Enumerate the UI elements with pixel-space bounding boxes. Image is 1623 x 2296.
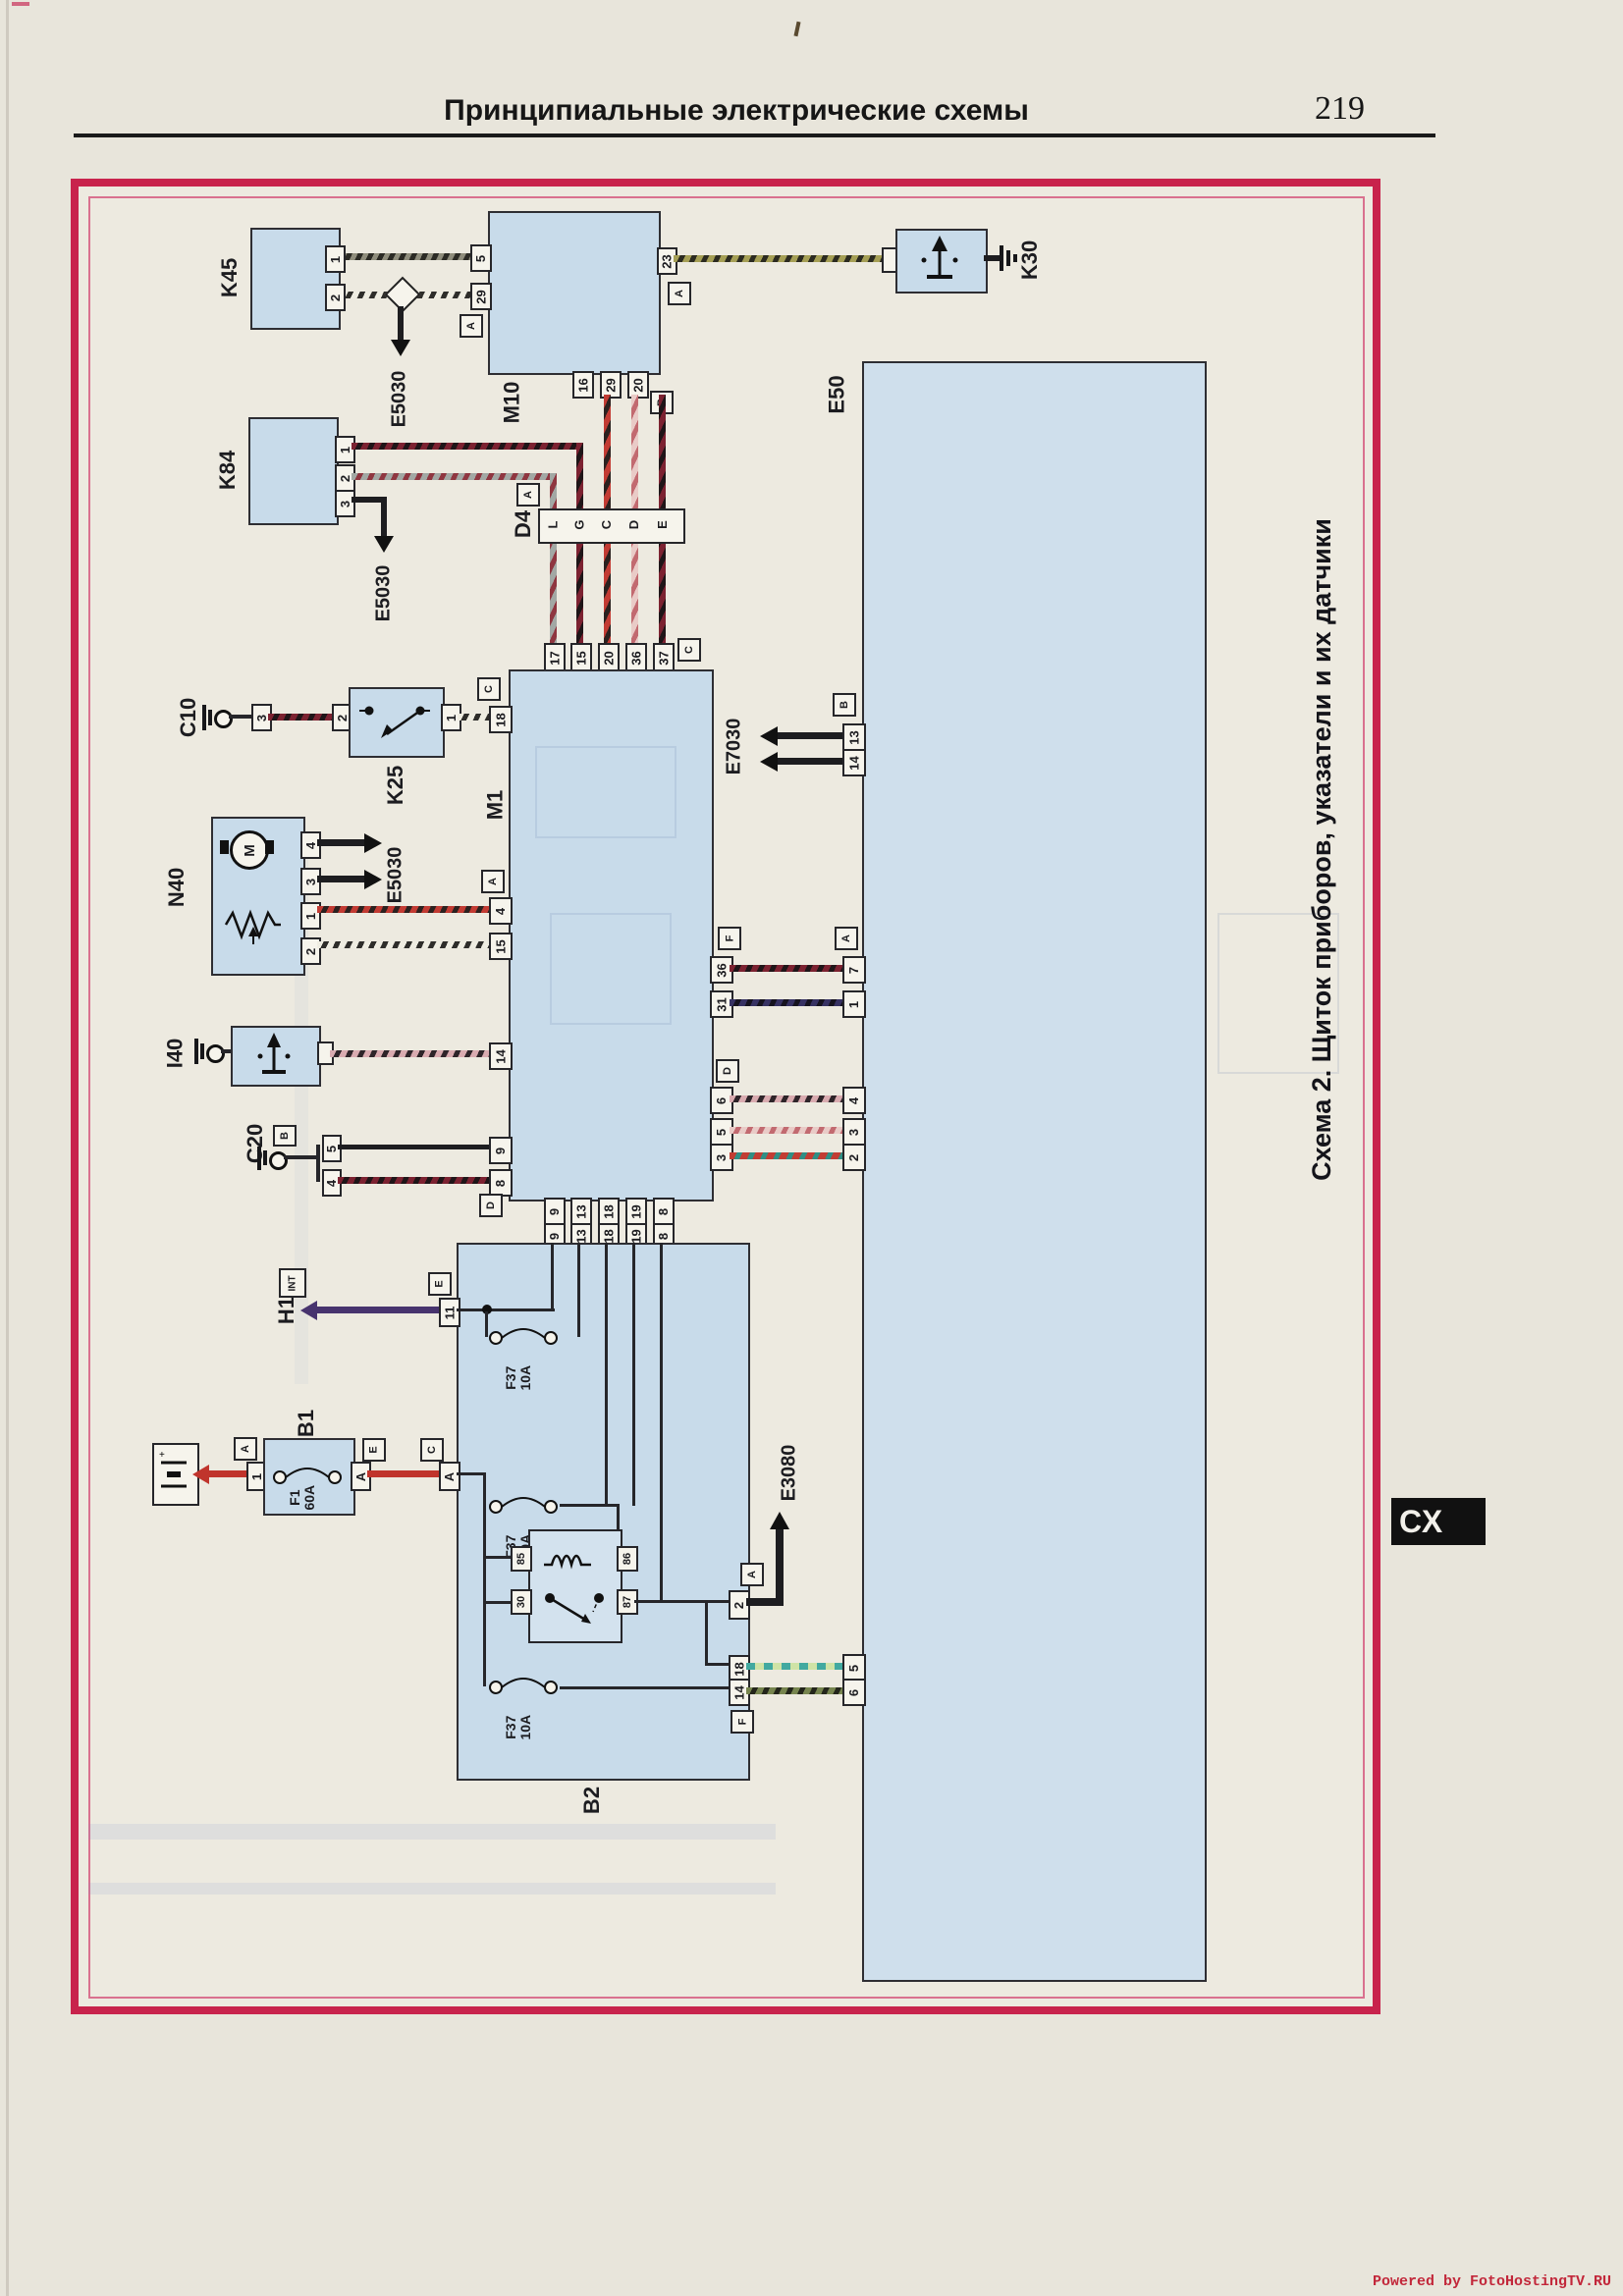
- pin-d4-L: L: [544, 512, 562, 536]
- scan-edge: [6, 0, 9, 2296]
- label-ground-e3080: E3080: [768, 1435, 811, 1510]
- figure-caption: Схема 2. Щиток приборов, указатели и их …: [1120, 829, 1523, 869]
- ground-ring-icon: [214, 710, 233, 728]
- bleed-ghost: [535, 746, 676, 838]
- pin-e50-2: 2: [842, 1144, 866, 1171]
- bleed-band: [88, 1824, 776, 1840]
- wire-b2-14-e50-6: [746, 1687, 842, 1694]
- e5030-stem: [317, 839, 364, 846]
- pin-m10-16: 16: [572, 371, 594, 399]
- pin-m1-15t: 15: [570, 643, 592, 672]
- label-ground-e5030-k45: E5030: [377, 355, 422, 442]
- svg-text:+: +: [159, 1450, 165, 1461]
- wire-m1-3-e50-2: [730, 1152, 842, 1159]
- b2-wire: [560, 1504, 619, 1507]
- wire-m1-31-e50-1: [730, 999, 842, 1006]
- tag-c-m1-left: C: [477, 677, 501, 701]
- header-rule: [74, 133, 1435, 137]
- relay-coil-icon: [542, 1543, 605, 1575]
- label-k25: K25: [381, 758, 410, 813]
- block-m10: [488, 211, 661, 375]
- wire-k84-1-d4: [352, 443, 583, 450]
- label-m10: M10: [497, 373, 526, 432]
- pin-relay-86: 86: [617, 1546, 638, 1572]
- pin-m1-17: 17: [544, 643, 566, 672]
- wire-k84-gnd-v: [381, 497, 387, 536]
- pin-d4-C: C: [598, 512, 616, 536]
- b2-wire: [632, 1243, 635, 1506]
- pin-e50-5: 5: [842, 1654, 866, 1682]
- sensor-icon: [921, 234, 958, 288]
- label-ground-e7030: E7030: [713, 699, 756, 793]
- tag-d-m1-right: D: [716, 1059, 739, 1083]
- ground-icon: [208, 710, 212, 725]
- wire-c10-conn: [229, 715, 251, 719]
- wire-k84-2-d4: [352, 473, 557, 480]
- relay-switch-icon: [538, 1584, 613, 1636]
- arrow-right-icon: [364, 870, 382, 889]
- label-k30: K30: [1015, 234, 1045, 287]
- tag-e-b1: E: [362, 1438, 386, 1462]
- wire-i40-gnd: [221, 1049, 231, 1053]
- tag-b-c20: B: [273, 1125, 297, 1147]
- pin-e50-6: 6: [842, 1679, 866, 1706]
- b2-wire: [705, 1663, 730, 1666]
- b2-wire: [634, 1600, 729, 1603]
- pin-m10-5: 5: [470, 244, 492, 272]
- page-number: 219: [1267, 90, 1365, 128]
- tag-a-b1: A: [234, 1437, 257, 1461]
- wire-c10-k25: [268, 714, 332, 721]
- e3080-stem-h: [746, 1598, 780, 1606]
- tag-a-m10-right: A: [668, 282, 691, 305]
- switch-icon: [359, 697, 430, 751]
- battery-icon: +: [157, 1449, 190, 1501]
- pin-m10-29: 29: [470, 283, 492, 310]
- pin-m1-b13: 13: [570, 1198, 592, 1225]
- pin-k84-1: 1: [335, 436, 355, 463]
- tag-e-b2-11: E: [428, 1272, 452, 1296]
- wire-d4-L: [550, 473, 557, 643]
- e7030-stem-1: [778, 732, 842, 739]
- ground-icon: [257, 1147, 261, 1170]
- label-n40: N40: [163, 860, 190, 915]
- scan-artifact: [793, 22, 800, 37]
- tag-int: INT: [279, 1268, 306, 1298]
- scan-artifact: [12, 2, 29, 6]
- fuse-icon: [487, 1677, 560, 1703]
- arrow-left-icon: [192, 1465, 209, 1484]
- b2-wire: [483, 1604, 486, 1686]
- section-badge-label: СХ: [1391, 1504, 1443, 1540]
- label-b2: B2: [577, 1781, 607, 1820]
- ground-stem: [984, 255, 1000, 261]
- tag-a-d4: A: [516, 483, 540, 507]
- pin-m1-8: 8: [489, 1169, 513, 1197]
- b2-wire: [551, 1243, 554, 1308]
- tag-c-b2wire: C: [420, 1438, 444, 1462]
- wire-c20-v: [316, 1145, 320, 1182]
- pin-m1-b9: 9: [544, 1198, 566, 1225]
- wire-k45-m10-1: [342, 253, 476, 260]
- pin-b2-11: 11: [439, 1298, 460, 1327]
- ground-ring-icon: [206, 1044, 225, 1063]
- label-k45: K45: [216, 251, 243, 304]
- label-b1: B1: [293, 1406, 320, 1441]
- pin-m1-37t: 37: [653, 643, 675, 672]
- wire-n40-2-m1: [317, 941, 489, 948]
- arrow-left-icon: [760, 726, 778, 746]
- ground-stem: [398, 306, 404, 340]
- resistor-icon: [224, 905, 283, 953]
- ground-icon: [263, 1150, 267, 1165]
- label-f37-3: F3710A: [501, 1706, 536, 1749]
- wire-n40-1-m1: [317, 906, 489, 913]
- pin-relay-85: 85: [511, 1546, 532, 1572]
- e3080-stem-v: [776, 1529, 784, 1606]
- pin-m1-14: 14: [489, 1042, 513, 1070]
- pin-m1-9: 9: [489, 1137, 513, 1164]
- pin-d4-G: G: [570, 512, 588, 536]
- b2-wire: [486, 1556, 513, 1559]
- pin-m1-15: 15: [489, 933, 513, 960]
- block-k84: [248, 417, 339, 525]
- block-e50: [862, 361, 1207, 1982]
- scanned-page: Принципиальные электрические схемы 219 E…: [0, 0, 1623, 2296]
- tag-a-b2-2: A: [740, 1563, 764, 1586]
- tag-c-m1-top: C: [677, 638, 701, 662]
- tag-b-e50: B: [833, 693, 856, 717]
- e7030-stem-2: [778, 758, 842, 765]
- tag-a-m10-left: A: [460, 314, 483, 338]
- wire-b2-h1: [316, 1307, 439, 1313]
- wire-c20-5-m1: [338, 1145, 489, 1149]
- pin-m1-18: 18: [489, 706, 513, 733]
- b2-wire: [486, 1601, 513, 1604]
- ground-ring-icon: [269, 1151, 288, 1170]
- pin-k45-1: 1: [325, 245, 346, 273]
- pin-m1-b18: 18: [598, 1198, 620, 1225]
- motor-pad: [265, 840, 274, 854]
- pin-e50-14: 14: [842, 749, 866, 776]
- pin-d4-E: E: [653, 512, 671, 536]
- pin-e50-13: 13: [842, 723, 866, 751]
- pin-m1-b8: 8: [653, 1198, 675, 1225]
- ground-icon: [1000, 245, 1003, 271]
- arrow-left-icon: [300, 1301, 317, 1320]
- arrow-right-icon: [364, 833, 382, 853]
- b2-wire: [457, 1472, 486, 1475]
- tag-f-m1-right: F: [718, 927, 741, 950]
- arrow-up-icon: [770, 1512, 789, 1529]
- label-d4: D4: [511, 507, 536, 542]
- arrow-down-icon: [391, 340, 410, 356]
- bleed-band: [88, 1883, 776, 1895]
- b2-wire: [560, 1686, 729, 1689]
- pin-m1-4: 4: [489, 897, 513, 925]
- b2-wire: [605, 1243, 608, 1506]
- b2-wire: [483, 1472, 486, 1506]
- motor-icon: M: [230, 830, 269, 870]
- fuse-icon: [487, 1327, 560, 1354]
- b2-wire: [457, 1308, 555, 1311]
- ground-icon: [202, 705, 206, 730]
- pin-m1-36t: 36: [625, 643, 647, 672]
- b2-wire: [660, 1243, 663, 1602]
- b2-wire: [705, 1603, 708, 1664]
- label-e50: E50: [823, 367, 852, 422]
- label-f37-1: F3710A: [501, 1357, 536, 1400]
- b2-wire: [483, 1506, 486, 1604]
- tag-f-b2: F: [730, 1710, 754, 1734]
- wire-m10-k30: [674, 255, 882, 262]
- pin-d4-D: D: [625, 512, 643, 536]
- ground-icon: [194, 1039, 198, 1064]
- sensor-icon: [257, 1031, 291, 1083]
- pin-k45-2: 2: [325, 284, 346, 311]
- wire-k25-m1: [458, 714, 489, 721]
- wire-m1-36-e50-7: [730, 965, 842, 972]
- page-title: Принципиальные электрические схемы: [373, 94, 1100, 128]
- pin-e50-3: 3: [842, 1118, 866, 1146]
- ground-icon: [200, 1043, 204, 1059]
- tag-d-m1-left: D: [479, 1194, 503, 1217]
- tag-a-m1-left: A: [481, 870, 505, 893]
- label-ground-e5030-k84: E5030: [361, 550, 406, 636]
- pin-e50-7: 7: [842, 956, 866, 984]
- motor-pad: [220, 840, 229, 854]
- arrow-left-icon: [760, 752, 778, 772]
- block-k45: [250, 228, 341, 330]
- section-badge: СХ: [1391, 1498, 1486, 1545]
- label-k84: K84: [214, 444, 242, 497]
- watermark: Powered by FotoHostingTV.RU: [1373, 2273, 1618, 2290]
- bleed-ghost: [550, 913, 672, 1025]
- wire-b1-b2: [367, 1470, 439, 1477]
- label-m1: M1: [481, 781, 509, 828]
- pin-e50-4: 4: [842, 1087, 866, 1114]
- pin-m1-b19: 19: [625, 1198, 647, 1225]
- b2-wire: [577, 1243, 580, 1337]
- label-f1: F160A: [285, 1478, 320, 1518]
- pin-relay-30: 30: [511, 1589, 532, 1615]
- wire-i40-m1: [330, 1050, 489, 1057]
- pin-m1-20t: 20: [598, 643, 620, 672]
- wire-m1-5-e50-3: [730, 1127, 842, 1134]
- pin-k84-3: 3: [335, 490, 355, 517]
- label-c10: C10: [175, 693, 202, 742]
- e5030-stem: [317, 876, 364, 882]
- wire-m1-6-e50-4: [730, 1095, 842, 1102]
- wire-c20-h: [284, 1155, 318, 1159]
- fuse-icon: [487, 1496, 560, 1522]
- ground-icon: [1006, 250, 1010, 266]
- wire-battery: [208, 1470, 247, 1477]
- wire-c20-4-m1: [338, 1177, 489, 1184]
- label-i40: I40: [161, 1029, 189, 1078]
- pin-b2-a: A: [439, 1462, 460, 1491]
- wire-b2-18-e50-5: [746, 1663, 842, 1670]
- pin-e50-1: 1: [842, 990, 866, 1018]
- tag-a-e50: A: [835, 927, 858, 950]
